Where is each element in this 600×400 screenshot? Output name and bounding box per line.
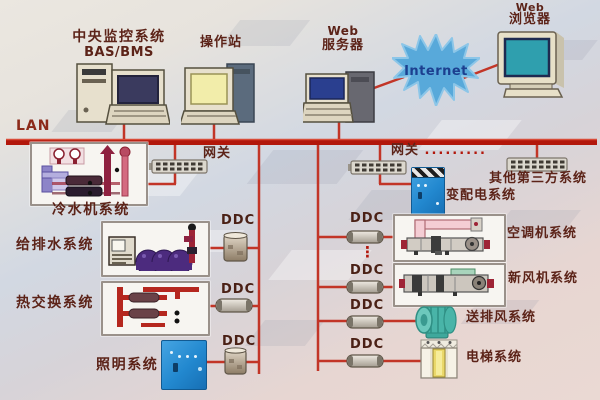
water-pumps-graphic xyxy=(103,223,204,271)
bas-network-diagram: 中央监控系统 BAS/BMS 操作站 Web 服务器 Internet Web … xyxy=(0,0,600,400)
central-monitoring-computer-icon xyxy=(68,60,170,126)
web-server-label-line1: Web xyxy=(316,25,370,38)
heat-exchange-system-label: 热交换系统 xyxy=(16,296,94,311)
ddc-label-lighting: DDC xyxy=(222,335,256,349)
power-distribution-label: 变配电系统 xyxy=(446,189,516,203)
lighting-system-label: 照明系统 xyxy=(96,358,158,373)
gateway-right-dots: ......... xyxy=(425,143,487,158)
web-server-label-line2: 服务器 xyxy=(312,39,374,53)
hazard-stripe xyxy=(412,168,444,178)
ahu-graphic xyxy=(395,216,500,256)
web-browser-label-line2: 浏览器 xyxy=(500,13,560,27)
fresh-air-graphic xyxy=(395,265,500,301)
chiller-system-label: 冷水机系统 xyxy=(52,203,130,218)
air-handling-system-box xyxy=(393,214,506,262)
ddc-label-elevator: DDC xyxy=(350,338,384,352)
ddc-label-freshair: DDC xyxy=(350,264,384,278)
operator-station-computer-icon xyxy=(181,60,257,126)
water-system-label: 给排水系统 xyxy=(16,238,94,253)
central-system-label-line1: 中央监控系统 xyxy=(60,30,178,45)
third-party-system-label: 其他第三方系统 xyxy=(489,172,587,186)
ddc-label-heatx: DDC xyxy=(221,283,255,297)
gateway-right-text: 网关 xyxy=(391,143,419,158)
gateway-right-label: 网关 ......... xyxy=(391,144,487,158)
ddc-controller-fan-icon xyxy=(346,314,384,330)
ddc-label-water: DDC xyxy=(221,214,255,228)
elevator-icon xyxy=(420,338,458,380)
lighting-cabinet-icon xyxy=(161,340,207,390)
web-server-icon xyxy=(303,68,377,124)
bus-continuation-dots: ⋮ xyxy=(360,246,375,260)
supply-exhaust-system-label: 送排风系统 xyxy=(466,311,536,325)
ddc-label-ahu: DDC xyxy=(350,212,384,226)
ddc-controller-elevator-icon xyxy=(346,353,384,369)
lan-label: LAN xyxy=(16,119,50,134)
fresh-air-system-label: 新风机系统 xyxy=(508,272,578,286)
elevator-system-label: 电梯系统 xyxy=(466,351,522,365)
ddc-controller-freshair-icon xyxy=(346,279,384,295)
central-system-label-line2: BAS/BMS xyxy=(60,46,178,60)
gateway-device-left-icon xyxy=(149,158,209,175)
ddc-label-fan: DDC xyxy=(350,299,384,313)
operator-station-label: 操作站 xyxy=(200,36,242,50)
fresh-air-system-box xyxy=(393,263,506,307)
water-system-box xyxy=(101,221,210,277)
chiller-system-box xyxy=(30,142,148,206)
heat-exchanger-graphic xyxy=(103,283,204,330)
internet-label: Internet xyxy=(404,65,468,79)
power-distribution-cabinet-icon xyxy=(411,167,445,217)
chiller-graphic xyxy=(32,144,142,200)
gateway-left-label: 网关 xyxy=(203,147,231,161)
gateway-device-right-icon xyxy=(348,159,408,176)
ddc-controller-water-icon xyxy=(222,231,249,263)
ddc-controller-heatx-icon xyxy=(215,297,253,314)
heat-exchange-system-box xyxy=(101,281,210,336)
air-handling-system-label: 空调机系统 xyxy=(507,227,577,241)
ddc-controller-lighting-icon xyxy=(224,347,248,376)
web-browser-monitor-icon xyxy=(494,26,566,98)
supply-exhaust-fan-icon xyxy=(414,302,458,342)
